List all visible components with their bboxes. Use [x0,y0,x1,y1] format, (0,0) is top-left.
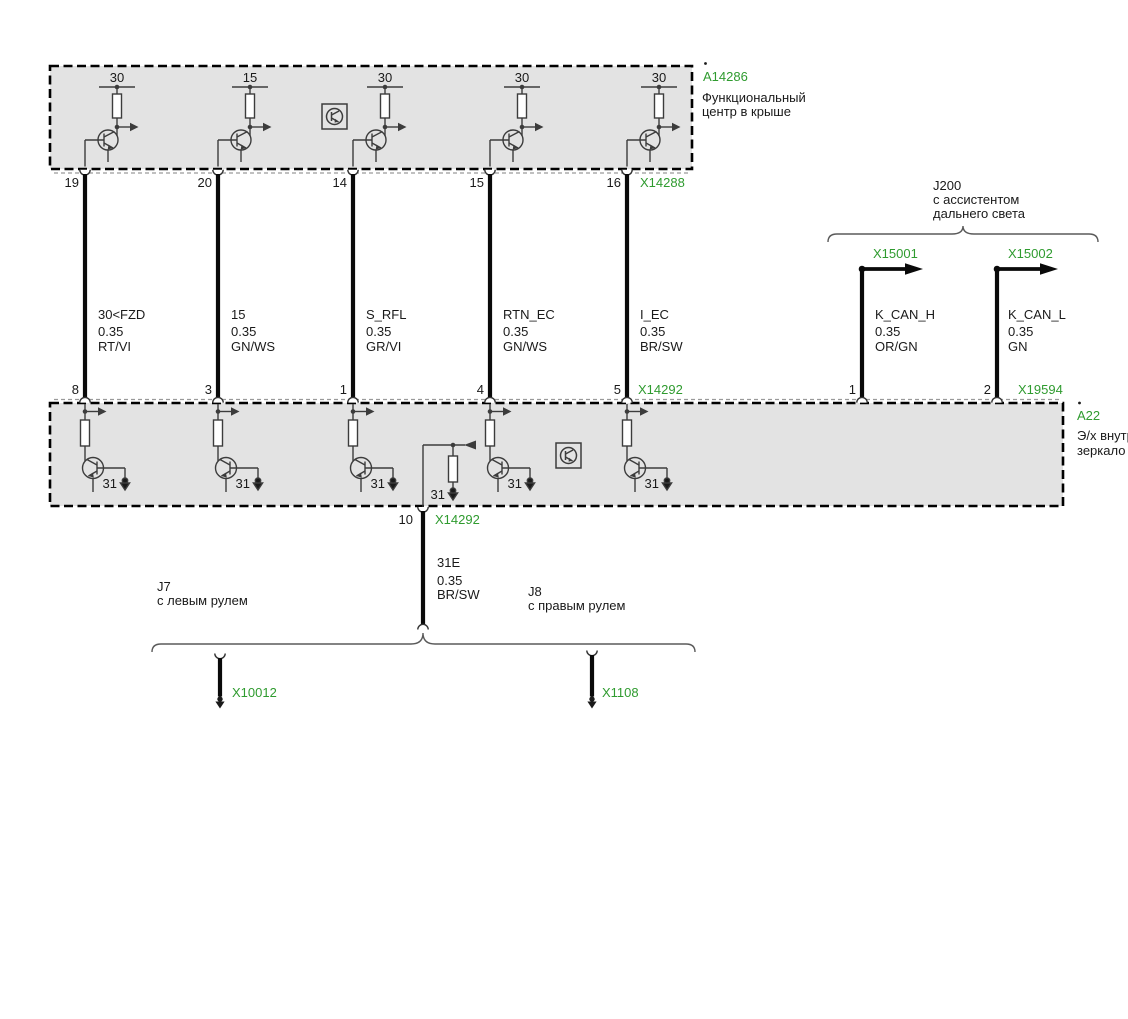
pin-number: 1 [830,383,856,397]
can-l-arrow [1040,263,1058,275]
wire-size: 0.35 [503,325,528,339]
wiring-diagram-page: 30 15 30 30 30 A14286 Функциональный цен… [0,0,1128,1019]
wire-color: GR/VI [366,340,401,354]
ground-label: 31 [369,477,385,491]
connector-id[interactable]: X14288 [640,176,685,190]
module-id[interactable]: A14286 [703,70,748,84]
connector-id[interactable]: X1108 [602,686,639,700]
wire-size: 0.35 [875,325,900,339]
footnote-dot [704,62,707,65]
footnote-dot [1078,402,1081,405]
connector-id[interactable]: X15001 [873,247,918,261]
supply-terminal-label: 15 [235,71,265,85]
connector-id[interactable]: X10012 [232,686,277,700]
supply-terminal-label: 30 [102,71,132,85]
module-title: Э/х внутр [1077,429,1128,443]
connector-id[interactable]: X14292 [435,513,480,527]
module-title: зеркало [1077,444,1125,458]
ground-symbol [587,696,596,708]
supply-terminal-label: 30 [370,71,400,85]
connector-id[interactable]: X15002 [1008,247,1053,261]
wire-color: OR/GN [875,340,918,354]
supply-terminal-label: 30 [507,71,537,85]
can-h-arrow [905,263,923,275]
wire-size: 0.35 [366,325,391,339]
wire-size: 0.35 [437,574,462,588]
wire-signal: K_CAN_H [875,308,935,322]
harness-wires [85,174,627,400]
module-title: центр в крыше [702,105,791,119]
wire-color: GN/WS [503,340,547,354]
mirror-module-box [50,397,1081,512]
pin-number: 14 [321,176,347,190]
diagram-canvas [0,0,1128,1019]
ground-label: 31 [643,477,659,491]
variant-brace [152,633,695,652]
wire-signal: I_EC [640,308,669,322]
wire-signal: 31E [437,556,460,570]
variant-id: J8 [528,585,542,599]
wire-signal: 30<FZD [98,308,145,322]
wire-size: 0.35 [98,325,123,339]
wire-signal: 15 [231,308,245,322]
j200-brace [828,226,1098,242]
pin-number: 1 [321,383,347,397]
pin-number: 10 [387,513,413,527]
wire-color: GN [1008,340,1028,354]
wire-color: BR/SW [640,340,683,354]
module-title: Функциональный [702,91,806,105]
pin-number: 19 [53,176,79,190]
variant-desc: с правым рулем [528,599,625,613]
wire-color: BR/SW [437,588,480,602]
wire-signal: K_CAN_L [1008,308,1066,322]
wire-signal: S_RFL [366,308,406,322]
ground-symbol [215,696,224,708]
wire-signal: RTN_EC [503,308,555,322]
ground-label: 31 [101,477,117,491]
variant-id: J200 [933,179,961,193]
ground-label: 31 [429,488,445,502]
connector-id[interactable]: X19594 [1018,383,1063,397]
pin-number: 15 [458,176,484,190]
ground-label: 31 [506,477,522,491]
pin-number: 8 [53,383,79,397]
wire-color: GN/WS [231,340,275,354]
pin-number: 16 [595,176,621,190]
wire-color: RT/VI [98,340,131,354]
ground-label: 31 [234,477,250,491]
variant-desc: с левым рулем [157,594,248,608]
supply-terminal-label: 30 [644,71,674,85]
module-id[interactable]: A22 [1077,409,1100,423]
pin-number: 3 [186,383,212,397]
variant-desc: с ассистентом [933,193,1019,207]
variant-desc: дальнего света [933,207,1025,221]
pin-number: 2 [965,383,991,397]
pin-number: 4 [458,383,484,397]
wire-size: 0.35 [231,325,256,339]
wire-size: 0.35 [640,325,665,339]
connector-id[interactable]: X14292 [638,383,683,397]
pin-number: 5 [595,383,621,397]
wire-size: 0.35 [1008,325,1033,339]
pin-number: 20 [186,176,212,190]
variant-id: J7 [157,580,171,594]
